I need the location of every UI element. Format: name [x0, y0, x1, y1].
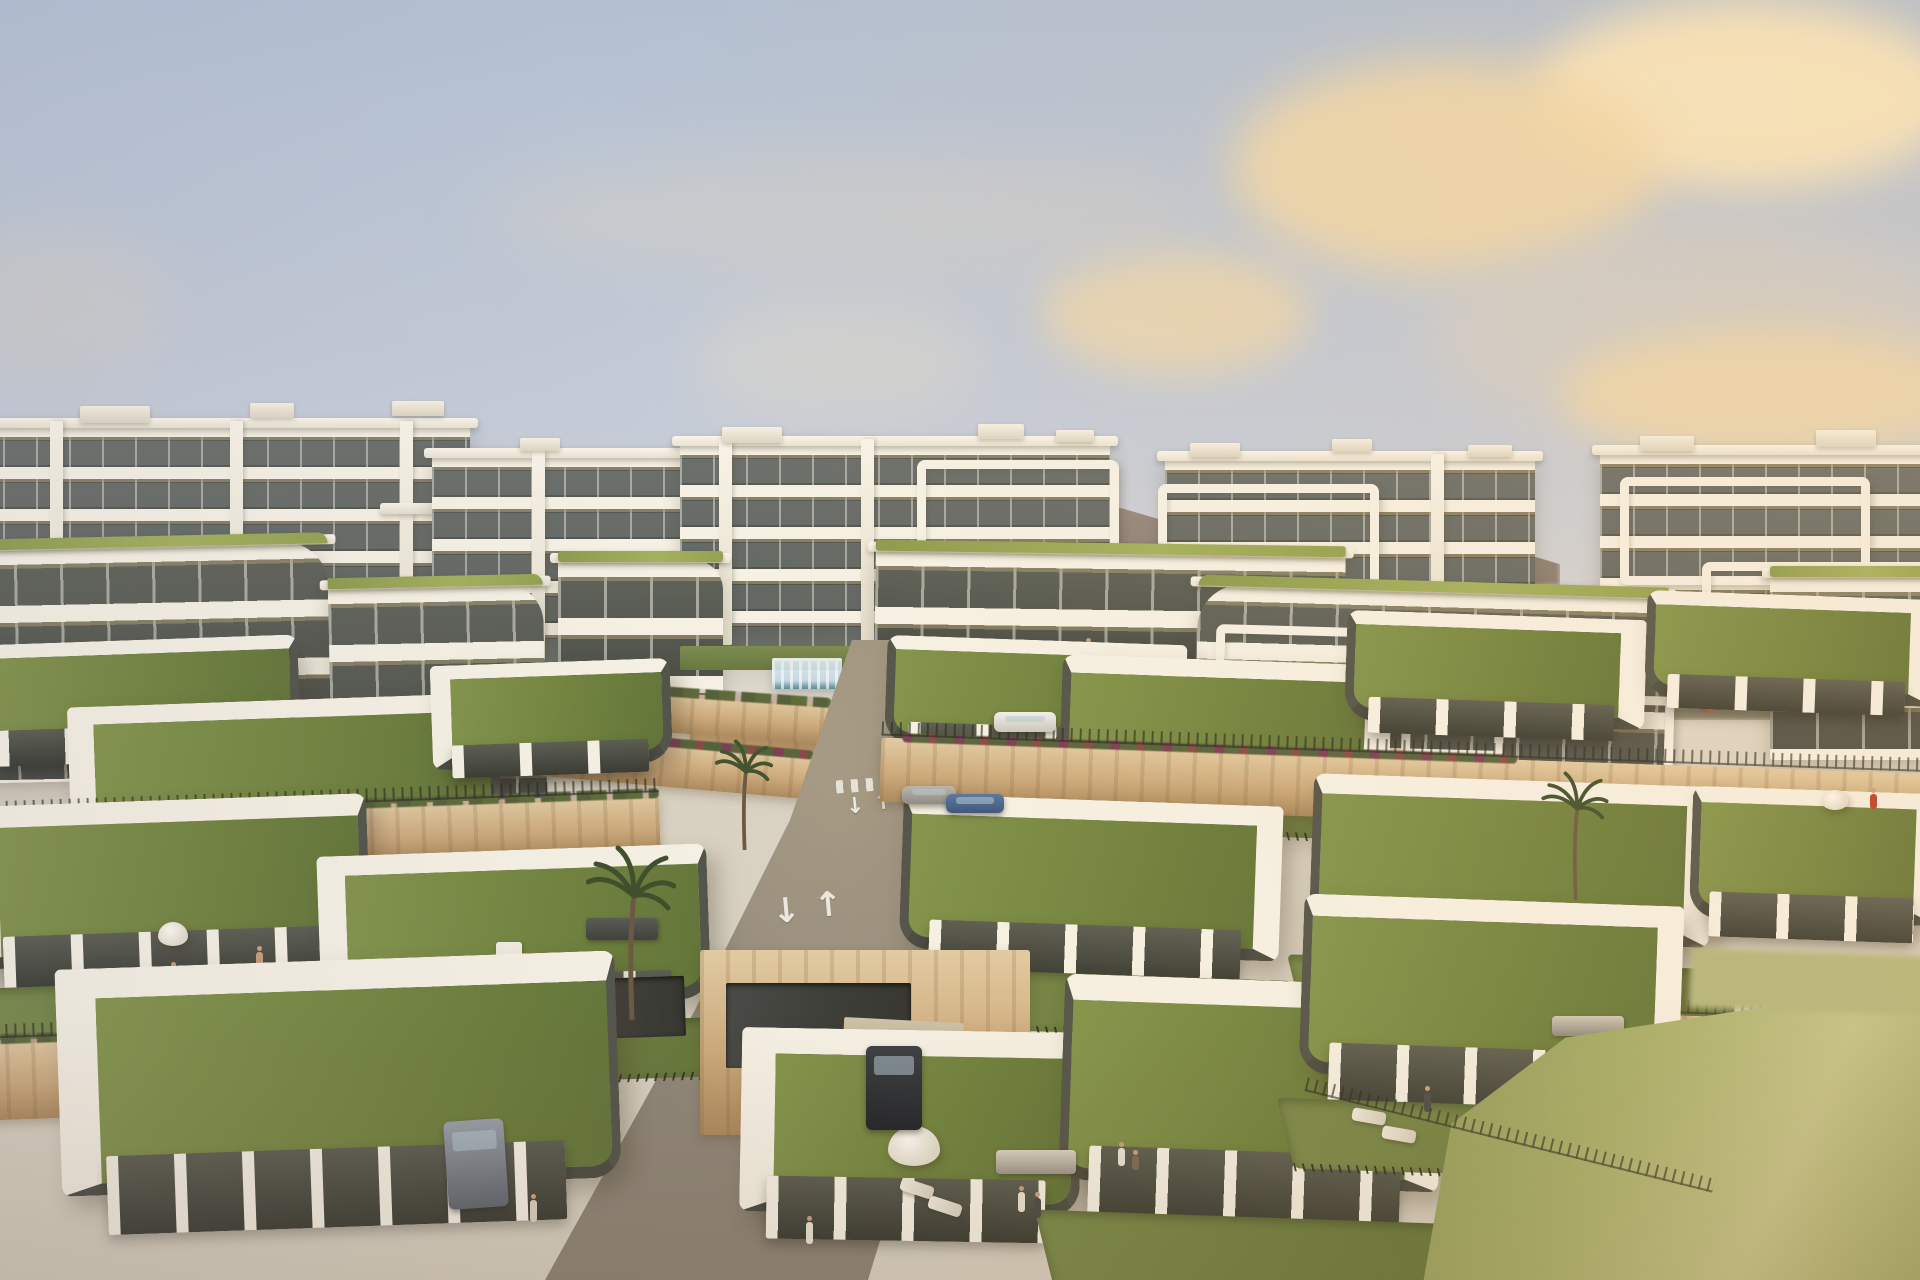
lane-arrow-down-icon: ↓	[771, 893, 802, 929]
cloud	[690, 300, 980, 420]
rooftop-box	[1816, 430, 1876, 447]
sports-car-grey	[443, 1118, 509, 1210]
person	[1018, 1192, 1025, 1212]
villa-facade	[1667, 673, 1906, 716]
suv-dark	[866, 1046, 922, 1130]
rooftop-box	[250, 403, 294, 418]
person	[1034, 1198, 1041, 1218]
outdoor-sofa	[996, 1150, 1076, 1174]
lawn-strip-right	[1689, 948, 1920, 1017]
palm-tree	[1540, 760, 1610, 900]
villa-garden	[1034, 1210, 1468, 1280]
cloud	[480, 150, 1200, 280]
person	[1870, 794, 1877, 809]
architectural-rendering: ↓ ↑ ↓ ↑	[0, 0, 1920, 1280]
person	[806, 1222, 813, 1244]
rooftop-box	[1056, 430, 1094, 442]
rooftop-box	[1468, 445, 1512, 457]
rooftop-box	[1332, 439, 1372, 452]
palm-tree	[714, 730, 774, 850]
pool-glass-panel	[772, 658, 842, 689]
person	[1118, 1148, 1125, 1166]
car-blue	[946, 794, 1004, 813]
person	[1132, 1156, 1139, 1170]
rooftop-box	[392, 401, 444, 416]
palm-tree	[586, 830, 676, 1020]
rooftop-box	[1190, 443, 1240, 457]
rooftop-box	[722, 427, 782, 443]
rooftop-box	[80, 406, 150, 423]
rooftop-box	[978, 424, 1024, 439]
car-white	[994, 712, 1056, 732]
villa	[1643, 590, 1920, 745]
villa	[54, 950, 625, 1280]
green-roofline-band	[1770, 566, 1920, 577]
villa-facade	[1708, 892, 1914, 944]
parasol	[1822, 790, 1848, 810]
rooftop-box	[520, 438, 560, 451]
lane-arrow-down-icon: ↓	[845, 795, 866, 819]
parasol	[888, 1126, 940, 1166]
villa-facade	[452, 738, 650, 778]
person	[530, 1200, 537, 1222]
cloud	[1040, 250, 1310, 375]
parasol	[158, 922, 188, 946]
rooftop-box	[1640, 436, 1694, 451]
green-roofline-band	[558, 551, 723, 562]
lane-arrow-up-icon: ↑	[813, 887, 844, 923]
